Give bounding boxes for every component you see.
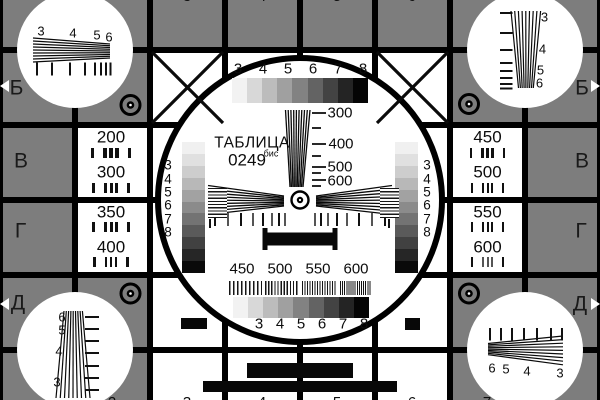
left-bar-digit: 4: [164, 172, 172, 186]
edge-digit-bottom: 2: [105, 396, 119, 400]
bottom-scale-digit: 3: [255, 317, 263, 332]
edge-digit-bottom: 5: [330, 396, 344, 400]
corner-bl-digit: 5: [58, 324, 65, 337]
row-letter-left-b: Б: [10, 77, 24, 98]
edge-digit-bottom: 3: [180, 396, 194, 400]
freq-label: 500: [267, 262, 292, 277]
cell-ticks-300: [84, 183, 138, 193]
wedge-label-400: 400: [328, 137, 353, 152]
corner-br-digit: 3: [556, 367, 563, 380]
top-scale-digit: 4: [259, 62, 267, 77]
top-scale-digit: 6: [309, 62, 317, 77]
left-hatch-block: [208, 188, 227, 218]
corner-br-digit: 6: [488, 362, 495, 375]
cell-ticks-200: [84, 148, 138, 158]
corner-circle-top-right: [467, 0, 583, 108]
wedge-label-300: 300: [327, 106, 352, 121]
burst-segment-600: [340, 281, 371, 295]
edge-digit-bottom: 7: [480, 396, 494, 400]
cell-ticks-500: [461, 183, 515, 193]
right-bar-digit: 3: [423, 158, 431, 172]
row-letter-right-v: В: [575, 151, 589, 172]
corner-circle-bottom-right: [467, 292, 583, 400]
left-triangle-marker-d-icon: [0, 298, 9, 310]
corner-tr-digit: 6: [536, 77, 543, 90]
corner-tl-digit: 6: [105, 31, 112, 44]
left-black-rectangle: [181, 318, 207, 329]
freq-label: 600: [343, 262, 368, 277]
bottom-scale-digit: 6: [318, 317, 326, 332]
right-bar-digit: 8: [423, 225, 431, 239]
row-letter-right-b: Б: [575, 77, 589, 98]
edge-digit-top: 4: [255, 0, 269, 5]
edge-digit-bottom: 4: [255, 396, 269, 400]
corner-circle-bottom-left: [17, 292, 133, 400]
left-hatch-tick: [209, 219, 211, 228]
cell-ticks-550: [461, 222, 515, 232]
cell-number-600: 600: [473, 238, 501, 255]
card-number: 0249: [228, 152, 266, 169]
row-letter-right-g: Г: [575, 220, 586, 241]
row-letter-left-d: Д: [11, 293, 25, 314]
top-scale-digit: 5: [284, 62, 292, 77]
edge-digit-top: 5: [330, 0, 344, 5]
test-card-0249: ТАБЛИЦА 0249 бис 3 4 5 6 7 8 300 400 500…: [0, 0, 600, 400]
left-bar-digit: 8: [164, 225, 172, 239]
right-hatch-block: [380, 188, 399, 218]
wedge-label-600: 600: [327, 174, 352, 189]
top-scale-digit: 8: [359, 62, 367, 77]
top-grayscale-bar: [232, 78, 368, 103]
corner-br-digit: 5: [502, 363, 509, 376]
cell-ticks-350: [84, 222, 138, 232]
bottom-scale-digit: 7: [339, 317, 347, 332]
burst-segment-450: [229, 281, 262, 295]
left-grayscale-bar: [182, 142, 205, 273]
frequency-burst-bar: [229, 281, 371, 295]
cell-ticks-600: [461, 257, 515, 267]
row-letter-right-d: Д: [573, 293, 587, 314]
burst-segment-500: [265, 281, 299, 295]
freq-label: 550: [305, 262, 330, 277]
left-bar-digit: 7: [164, 212, 172, 226]
corner-tl-digit: 4: [69, 27, 76, 40]
cell-number-450: 450: [473, 128, 501, 145]
left-triangle-marker-b-icon: [0, 80, 9, 92]
corner-tl-digit: 3: [37, 25, 44, 38]
bottom-narrow-bar: [247, 363, 353, 378]
cell-ticks-400: [84, 257, 138, 267]
corner-br-digit: 4: [523, 365, 530, 378]
corner-tr-digit: 4: [539, 43, 546, 56]
corner-bl-digit: 4: [55, 345, 62, 358]
right-triangle-marker-d-icon: [591, 298, 600, 310]
edge-digit-bottom: 6: [405, 396, 419, 400]
cell-ticks-450: [461, 148, 515, 158]
burst-segment-550: [302, 281, 337, 295]
corner-circle-top-left: [17, 0, 133, 108]
left-bar-digit: 6: [164, 198, 172, 212]
card-number-suffix: бис: [264, 150, 279, 159]
cell-number-400: 400: [97, 238, 125, 255]
cell-number-300: 300: [97, 163, 125, 180]
edge-digit-top: 3: [180, 0, 194, 5]
row-letter-left-g: Г: [15, 220, 26, 241]
bottom-wide-bar: [203, 381, 397, 392]
corner-tr-digit: 3: [541, 11, 548, 24]
cell-number-550: 550: [473, 203, 501, 220]
right-bar-digit: 7: [423, 212, 431, 226]
top-scale-digit: 3: [234, 62, 242, 77]
edge-digit-top: 6: [405, 0, 419, 5]
cell-number-350: 350: [97, 203, 125, 220]
right-bar-digit: 6: [423, 198, 431, 212]
cell-number-200: 200: [97, 128, 125, 145]
row-letter-left-v: В: [14, 151, 28, 172]
freq-label: 450: [229, 262, 254, 277]
right-black-square: [405, 318, 420, 330]
corner-bl-digit: 3: [53, 376, 60, 389]
right-triangle-marker-b-icon: [591, 80, 600, 92]
corner-tl-digit: 5: [93, 29, 100, 42]
left-bar-digit: 3: [164, 158, 172, 172]
top-scale-digit: 7: [334, 62, 342, 77]
right-bar-digit: 4: [423, 172, 431, 186]
bottom-scale-digit: 5: [297, 317, 305, 332]
bottom-scale-digit: 4: [276, 317, 284, 332]
cell-number-500: 500: [473, 163, 501, 180]
bottom-scale-digit: 8: [360, 317, 368, 332]
right-hatch-tick: [388, 219, 390, 228]
